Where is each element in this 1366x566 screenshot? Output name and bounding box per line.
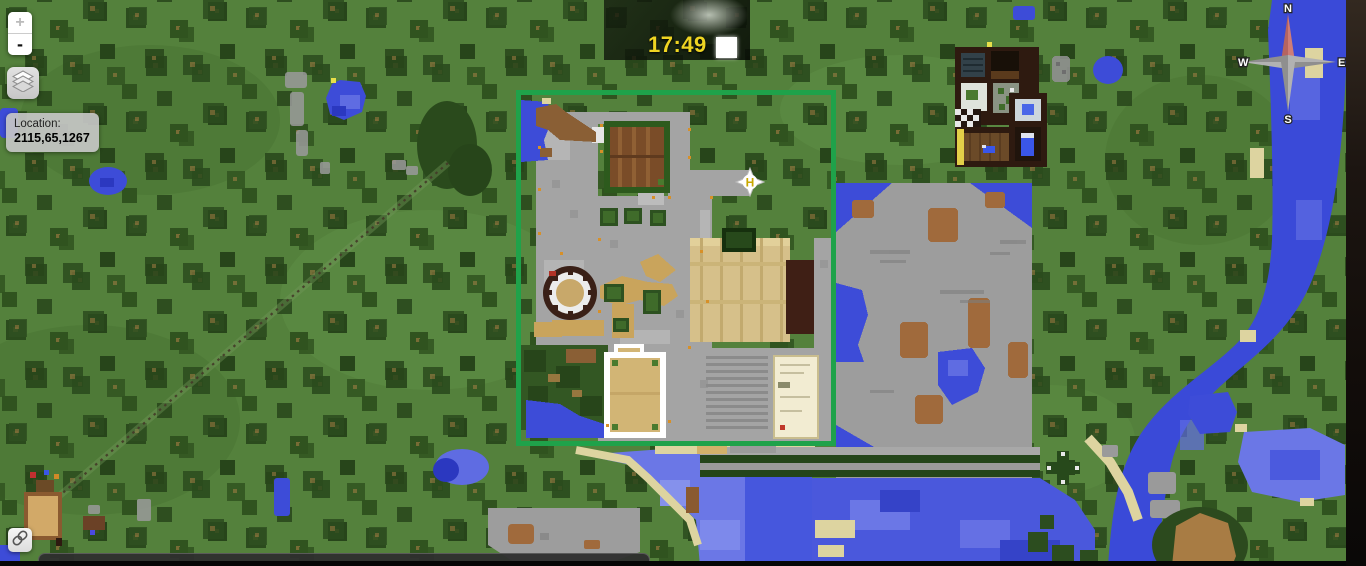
link-button[interactable] — [8, 528, 32, 552]
bottom-edge-strip — [0, 561, 1366, 566]
location-box: Location: 2115,65,1267 — [6, 113, 99, 152]
layers-button[interactable] — [7, 67, 39, 99]
zoom-in-button[interactable]: + — [8, 12, 32, 34]
chain-link-icon — [11, 529, 29, 552]
location-coordinates: 2115,65,1267 — [14, 131, 90, 147]
marker-label: H — [746, 176, 755, 190]
zoom-control: + - — [8, 12, 32, 55]
clock-panel: 17:49 — [604, 0, 750, 60]
sun-square-icon — [716, 37, 737, 58]
right-edge-strip — [1346, 0, 1366, 566]
layers-icon — [12, 70, 34, 97]
compass-star-marker-icon[interactable]: H — [735, 167, 765, 197]
location-label: Location: — [14, 117, 90, 131]
clock-time: 17:49 — [648, 32, 707, 58]
dynmap-screen: H + - Location: 2115,65,1267 17:49 N E S… — [0, 0, 1366, 566]
highlight-rectangle — [516, 90, 836, 446]
zoom-out-button[interactable]: - — [8, 34, 32, 55]
